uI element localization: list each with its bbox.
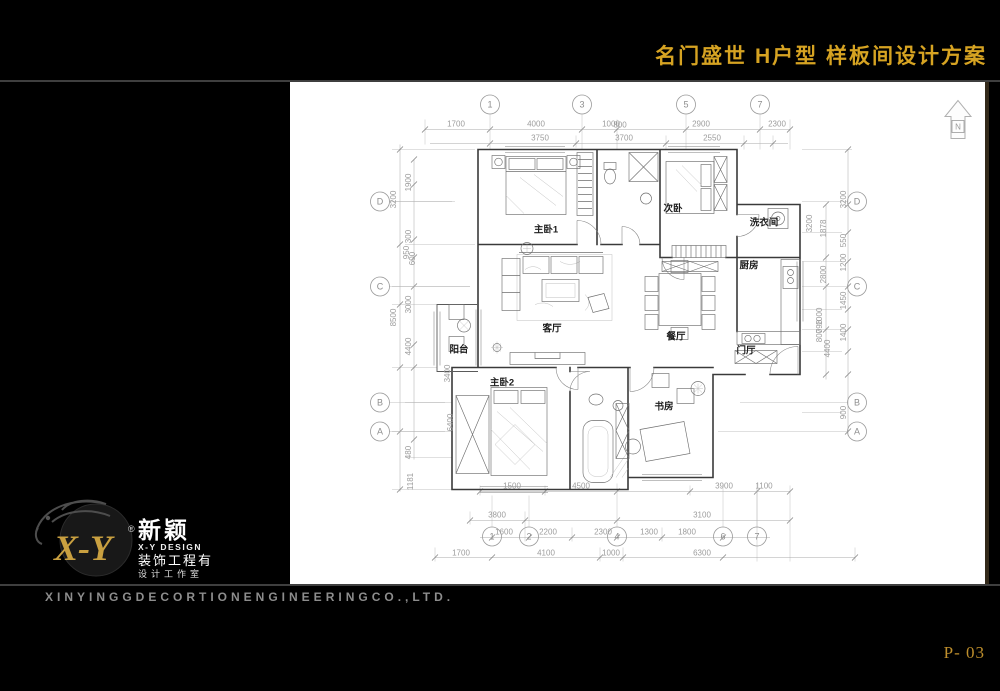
- wardrobe-master1-icon: [577, 153, 593, 216]
- dimension-label: 3750: [531, 134, 549, 143]
- grid-bubble: A: [848, 422, 867, 441]
- grid-bubble: 5: [677, 95, 696, 114]
- dimension-label: 2200: [539, 528, 557, 537]
- dimension-label: 4000: [527, 120, 545, 129]
- logo-subtitle-2: 设计工作室: [138, 568, 203, 579]
- walls: [437, 150, 800, 490]
- dimension-label: 3000: [404, 295, 413, 313]
- grid-bubbles: 135712467DCBADCBA: [371, 95, 867, 546]
- dimension-label: 1600: [495, 528, 513, 537]
- dining-set-icon: [645, 261, 715, 340]
- bathroom2-fixtures-icon: [583, 394, 628, 483]
- second-bedroom-wardrobe-icon: [662, 246, 726, 272]
- dimension-label: 2300: [594, 528, 612, 537]
- grid-bubble: 1: [481, 95, 500, 114]
- dimension-label: 1200: [839, 253, 848, 271]
- dimension-label: 3200: [839, 190, 848, 208]
- logo-xy-text: X-Y: [53, 528, 115, 568]
- bed-master1-icon: [492, 156, 580, 215]
- logo-chinese-name: 新颖: [138, 517, 190, 543]
- dimension-label: 1700: [452, 549, 470, 558]
- page-number: P- 03: [944, 643, 985, 663]
- room-label: 次卧: [663, 203, 683, 215]
- room-label: 餐厅: [665, 331, 686, 343]
- svg-text:3: 3: [579, 100, 584, 110]
- svg-text:7: 7: [757, 100, 762, 110]
- grid-bubble: 6: [714, 527, 733, 546]
- floor-plan-paper: N 135712467DCBADCBA 17004000100080029002…: [290, 82, 985, 584]
- dimension-label: 3800: [488, 511, 506, 520]
- room-label: 门厅: [736, 345, 756, 357]
- logo-registered-mark: ®: [128, 524, 135, 534]
- dimension-label: 1300: [640, 528, 658, 537]
- dimension-label: 1181: [406, 472, 415, 490]
- bathroom1-fixtures-icon: [604, 153, 658, 205]
- doors: [556, 215, 798, 392]
- dimension-label: 8500: [389, 308, 398, 326]
- dimension-label: 2300: [768, 120, 786, 129]
- dimension-lines: [397, 127, 858, 561]
- grid-bubble: D: [848, 192, 867, 211]
- dimension-label: 1400: [839, 323, 848, 341]
- dimension-label: 4400: [823, 339, 832, 357]
- svg-text:1: 1: [487, 100, 492, 110]
- svg-text:B: B: [377, 398, 383, 408]
- room-label: 主卧1: [534, 224, 559, 236]
- svg-text:4: 4: [614, 532, 619, 542]
- dimension-label: 1878: [819, 219, 828, 237]
- dimension-label: 3200: [389, 190, 398, 208]
- room-label: 洗衣间: [750, 217, 779, 229]
- dimension-label: 2800: [819, 265, 828, 283]
- dimension-label: 1450: [839, 291, 848, 309]
- grid-bubble: B: [371, 393, 390, 412]
- north-label: N: [955, 123, 961, 132]
- dimension-label: 550: [839, 233, 848, 247]
- svg-text:B: B: [854, 398, 860, 408]
- company-logo-graphic: X-Y ® 新颖 X-Y DESIGN 装饰工程有 设计工作室: [18, 488, 228, 586]
- dimension-label: 900: [839, 405, 848, 419]
- grid-bubble: C: [848, 277, 867, 296]
- living-room-sofa-icon: [491, 243, 612, 365]
- presentation-page: 名门盛世 H户型 样板间设计方案: [0, 0, 1000, 691]
- logo-english-name: X-Y DESIGN: [138, 542, 202, 552]
- dimension-label: 1500: [503, 482, 521, 491]
- dimension-label: 4400: [404, 337, 413, 355]
- svg-text:2: 2: [526, 532, 531, 542]
- svg-text:D: D: [854, 197, 861, 207]
- dimension-label: 3700: [615, 134, 633, 143]
- svg-text:C: C: [377, 282, 384, 292]
- dimension-label: 480: [404, 445, 413, 459]
- dimension-label: 3100: [693, 511, 711, 520]
- room-label: 厨房: [739, 260, 758, 272]
- study-furniture-icon: [616, 374, 705, 462]
- dimension-label: 1100: [755, 482, 773, 491]
- dimension-label: 6300: [693, 549, 711, 558]
- svg-text:6: 6: [720, 532, 725, 542]
- dimension-labels: 1700400010008002900230037503700255015004…: [389, 120, 848, 558]
- dimension-label: 3900: [715, 482, 733, 491]
- grid-bubble: 7: [751, 95, 770, 114]
- room-labels: 主卧1次卧洗衣间厨房客厅餐厅门厅阳台主卧2书房: [449, 203, 778, 413]
- grid-bubble: 2: [520, 527, 539, 546]
- kitchen-counter-icon: [737, 260, 800, 345]
- svg-text:5: 5: [683, 100, 688, 110]
- svg-text:A: A: [854, 427, 860, 437]
- dimension-label: 800: [613, 121, 627, 130]
- dimension-label: 1000: [602, 549, 620, 558]
- dimension-label: 3200: [805, 214, 814, 232]
- svg-text:D: D: [377, 197, 384, 207]
- floor-plan-drawing: N 135712467DCBADCBA 17004000100080029002…: [290, 82, 985, 584]
- grid-bubble: B: [848, 393, 867, 412]
- north-arrow-icon: N: [945, 101, 971, 139]
- dimension-label: 6400: [446, 413, 455, 431]
- company-logo: X-Y ® 新颖 X-Y DESIGN 装饰工程有 设计工作室: [18, 488, 228, 586]
- dimension-label: 2550: [703, 134, 721, 143]
- room-label: 书房: [654, 401, 673, 413]
- dimension-label: 1900: [404, 173, 413, 191]
- dimension-label: 1700: [447, 120, 465, 129]
- extension-lines: [392, 120, 855, 562]
- logo-subtitle-1: 装饰工程有: [138, 553, 213, 568]
- room-label: 阳台: [449, 344, 469, 356]
- bed-master2-icon: [456, 388, 547, 476]
- dimension-label: 4500: [572, 482, 590, 491]
- svg-text:A: A: [377, 427, 383, 437]
- room-label: 主卧2: [490, 377, 514, 389]
- grid-bubble: D: [371, 192, 390, 211]
- dimension-label: 300: [404, 229, 413, 243]
- dimension-label: 1800: [678, 528, 696, 537]
- paper-edge-shadow: [985, 82, 989, 584]
- windows: [434, 147, 803, 493]
- svg-text:1: 1: [489, 532, 494, 542]
- svg-text:7: 7: [754, 532, 759, 542]
- page-title: 名门盛世 H户型 样板间设计方案: [655, 40, 987, 70]
- dimension-label: 2900: [692, 120, 710, 129]
- company-name-text: XINYINGGDECORTIONENGINEERINGCO.,LTD.: [45, 590, 454, 604]
- dimension-label: 600: [408, 251, 417, 265]
- room-label: 客厅: [541, 323, 562, 335]
- dimension-label: 4100: [537, 549, 555, 558]
- dimension-label: 3400: [443, 364, 452, 382]
- grid-bubble: 3: [573, 95, 592, 114]
- svg-text:C: C: [854, 282, 861, 292]
- grid-bubble: C: [371, 277, 390, 296]
- grid-bubble: A: [371, 422, 390, 441]
